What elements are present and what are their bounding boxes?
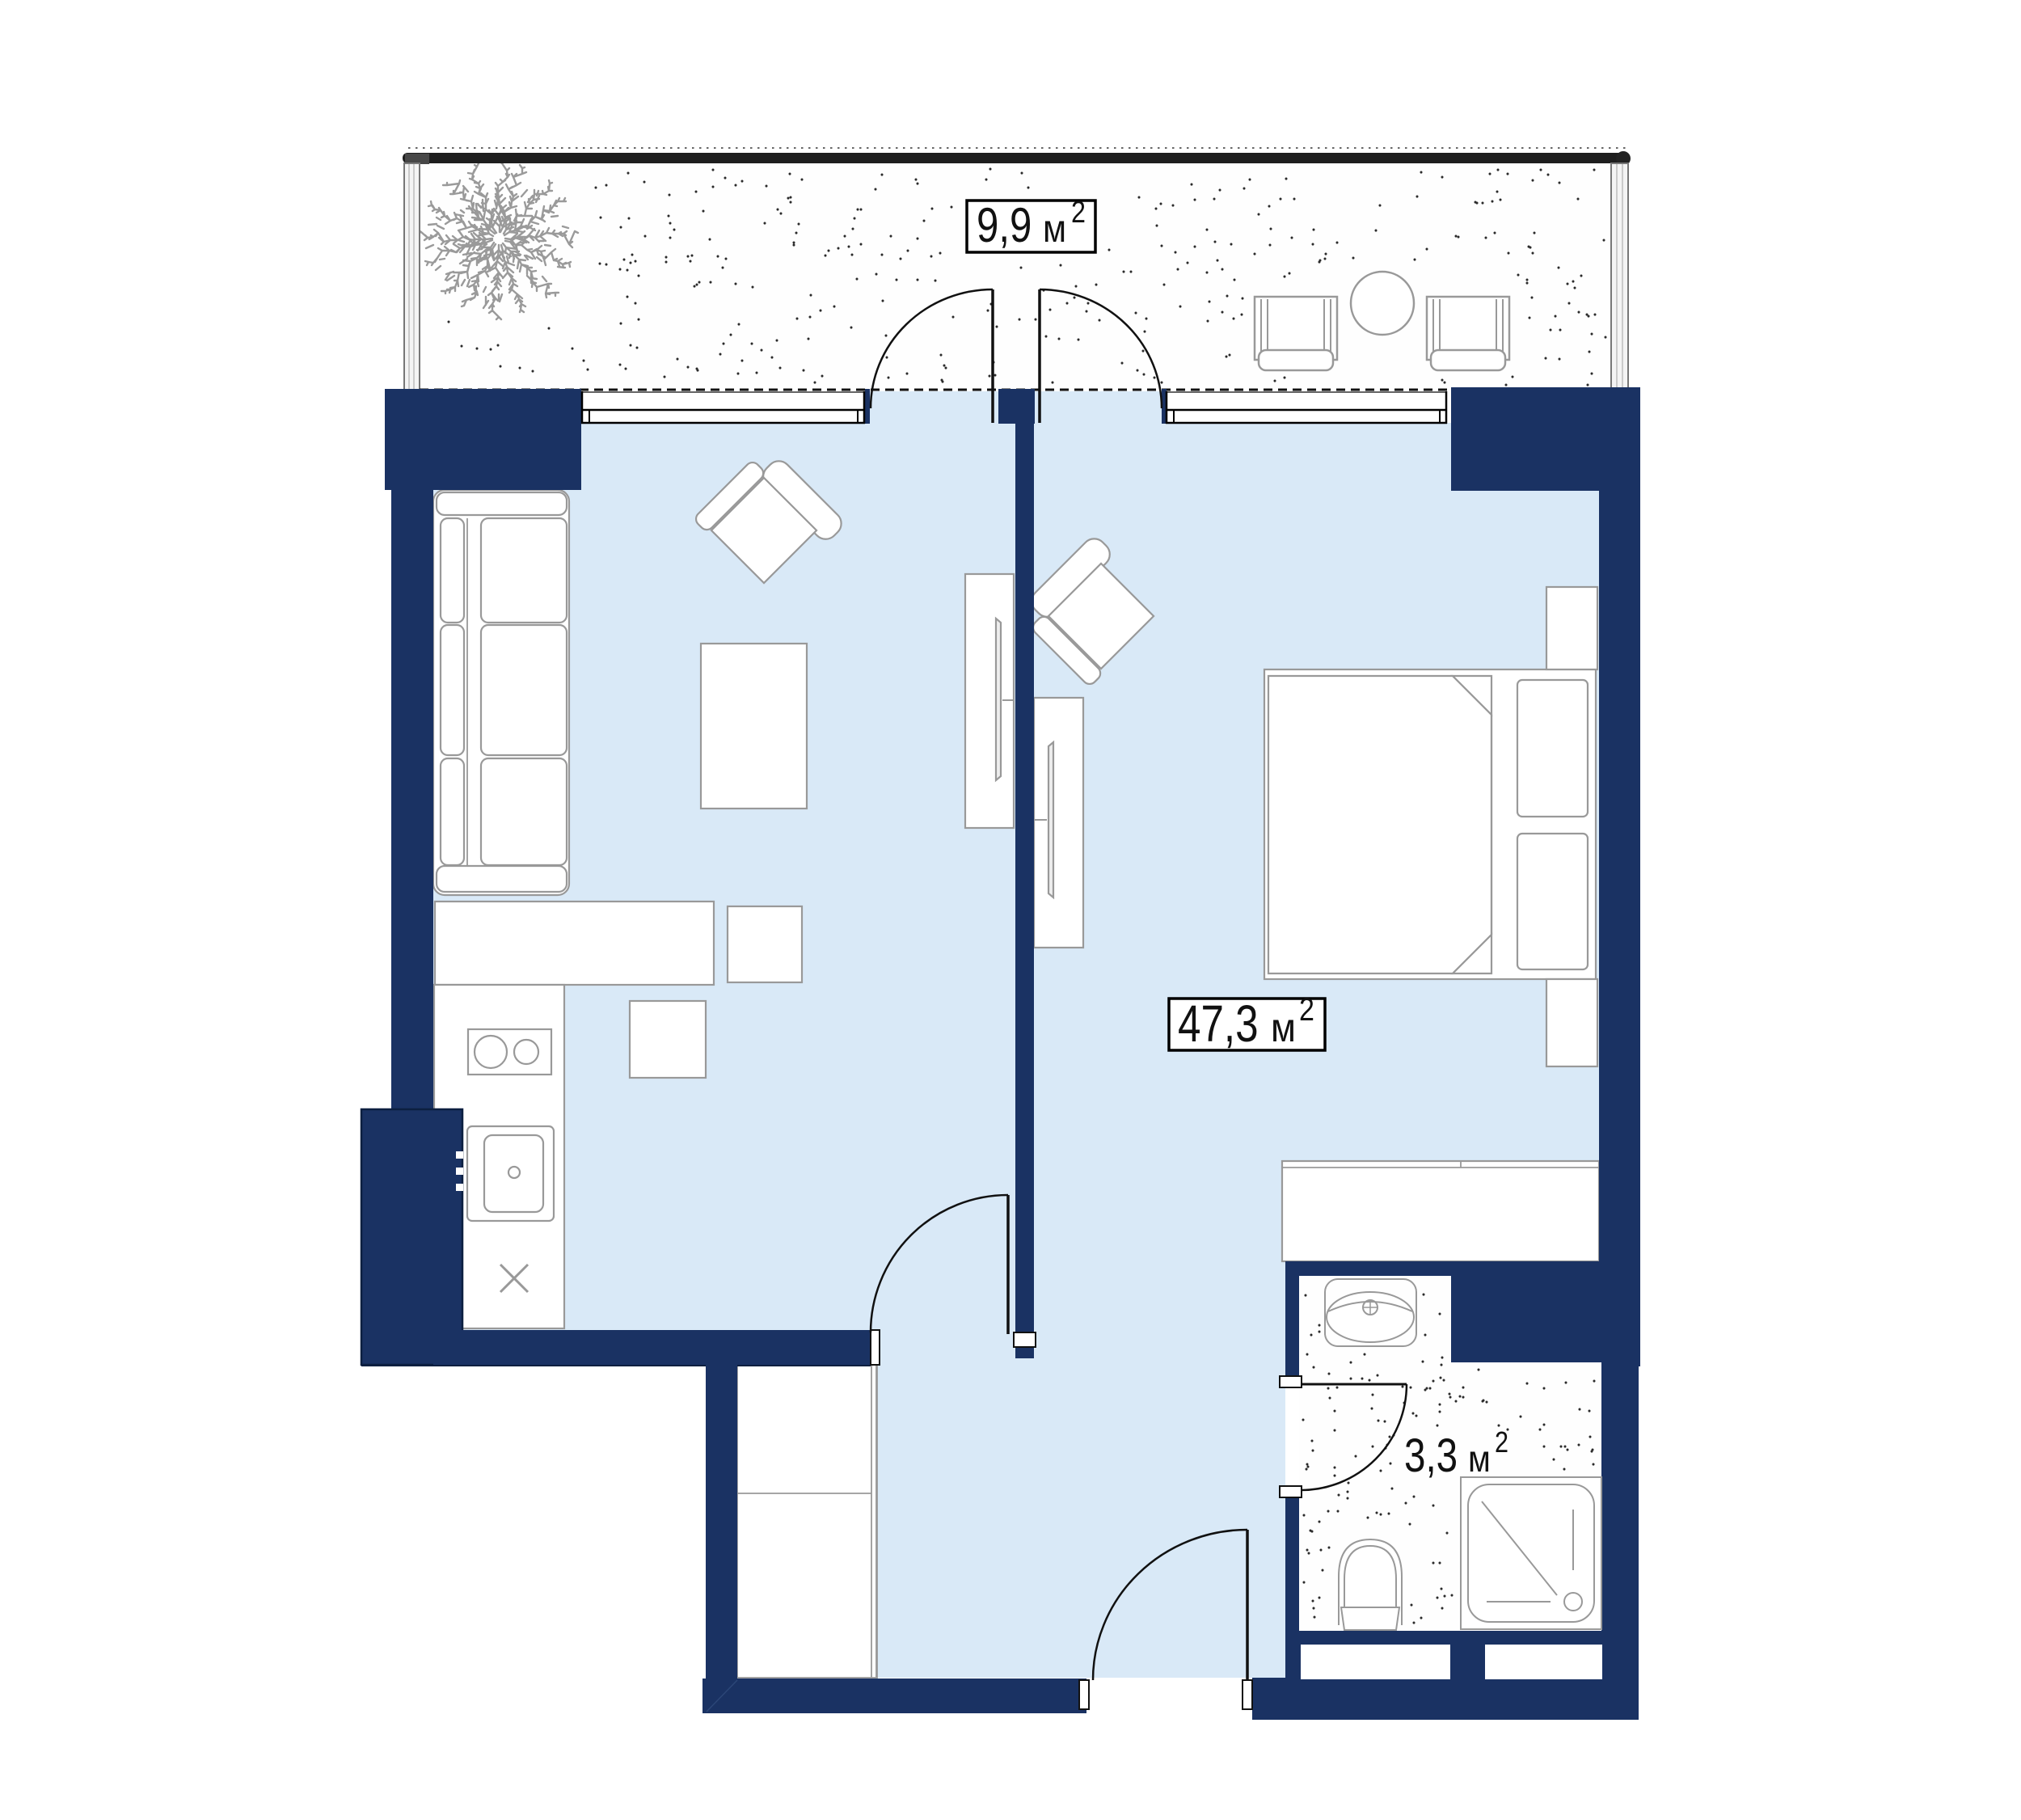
svg-text:9,9: 9,9 [977,197,1032,252]
svg-text:м: м [1271,1006,1296,1051]
svg-text:3,3: 3,3 [1404,1430,1458,1483]
svg-text:2: 2 [1071,196,1086,230]
svg-text:2: 2 [1299,990,1314,1027]
svg-text:2: 2 [1495,1427,1508,1459]
svg-text:м: м [1043,206,1066,250]
svg-text:47,3: 47,3 [1178,996,1259,1054]
svg-text:м: м [1468,1439,1491,1480]
